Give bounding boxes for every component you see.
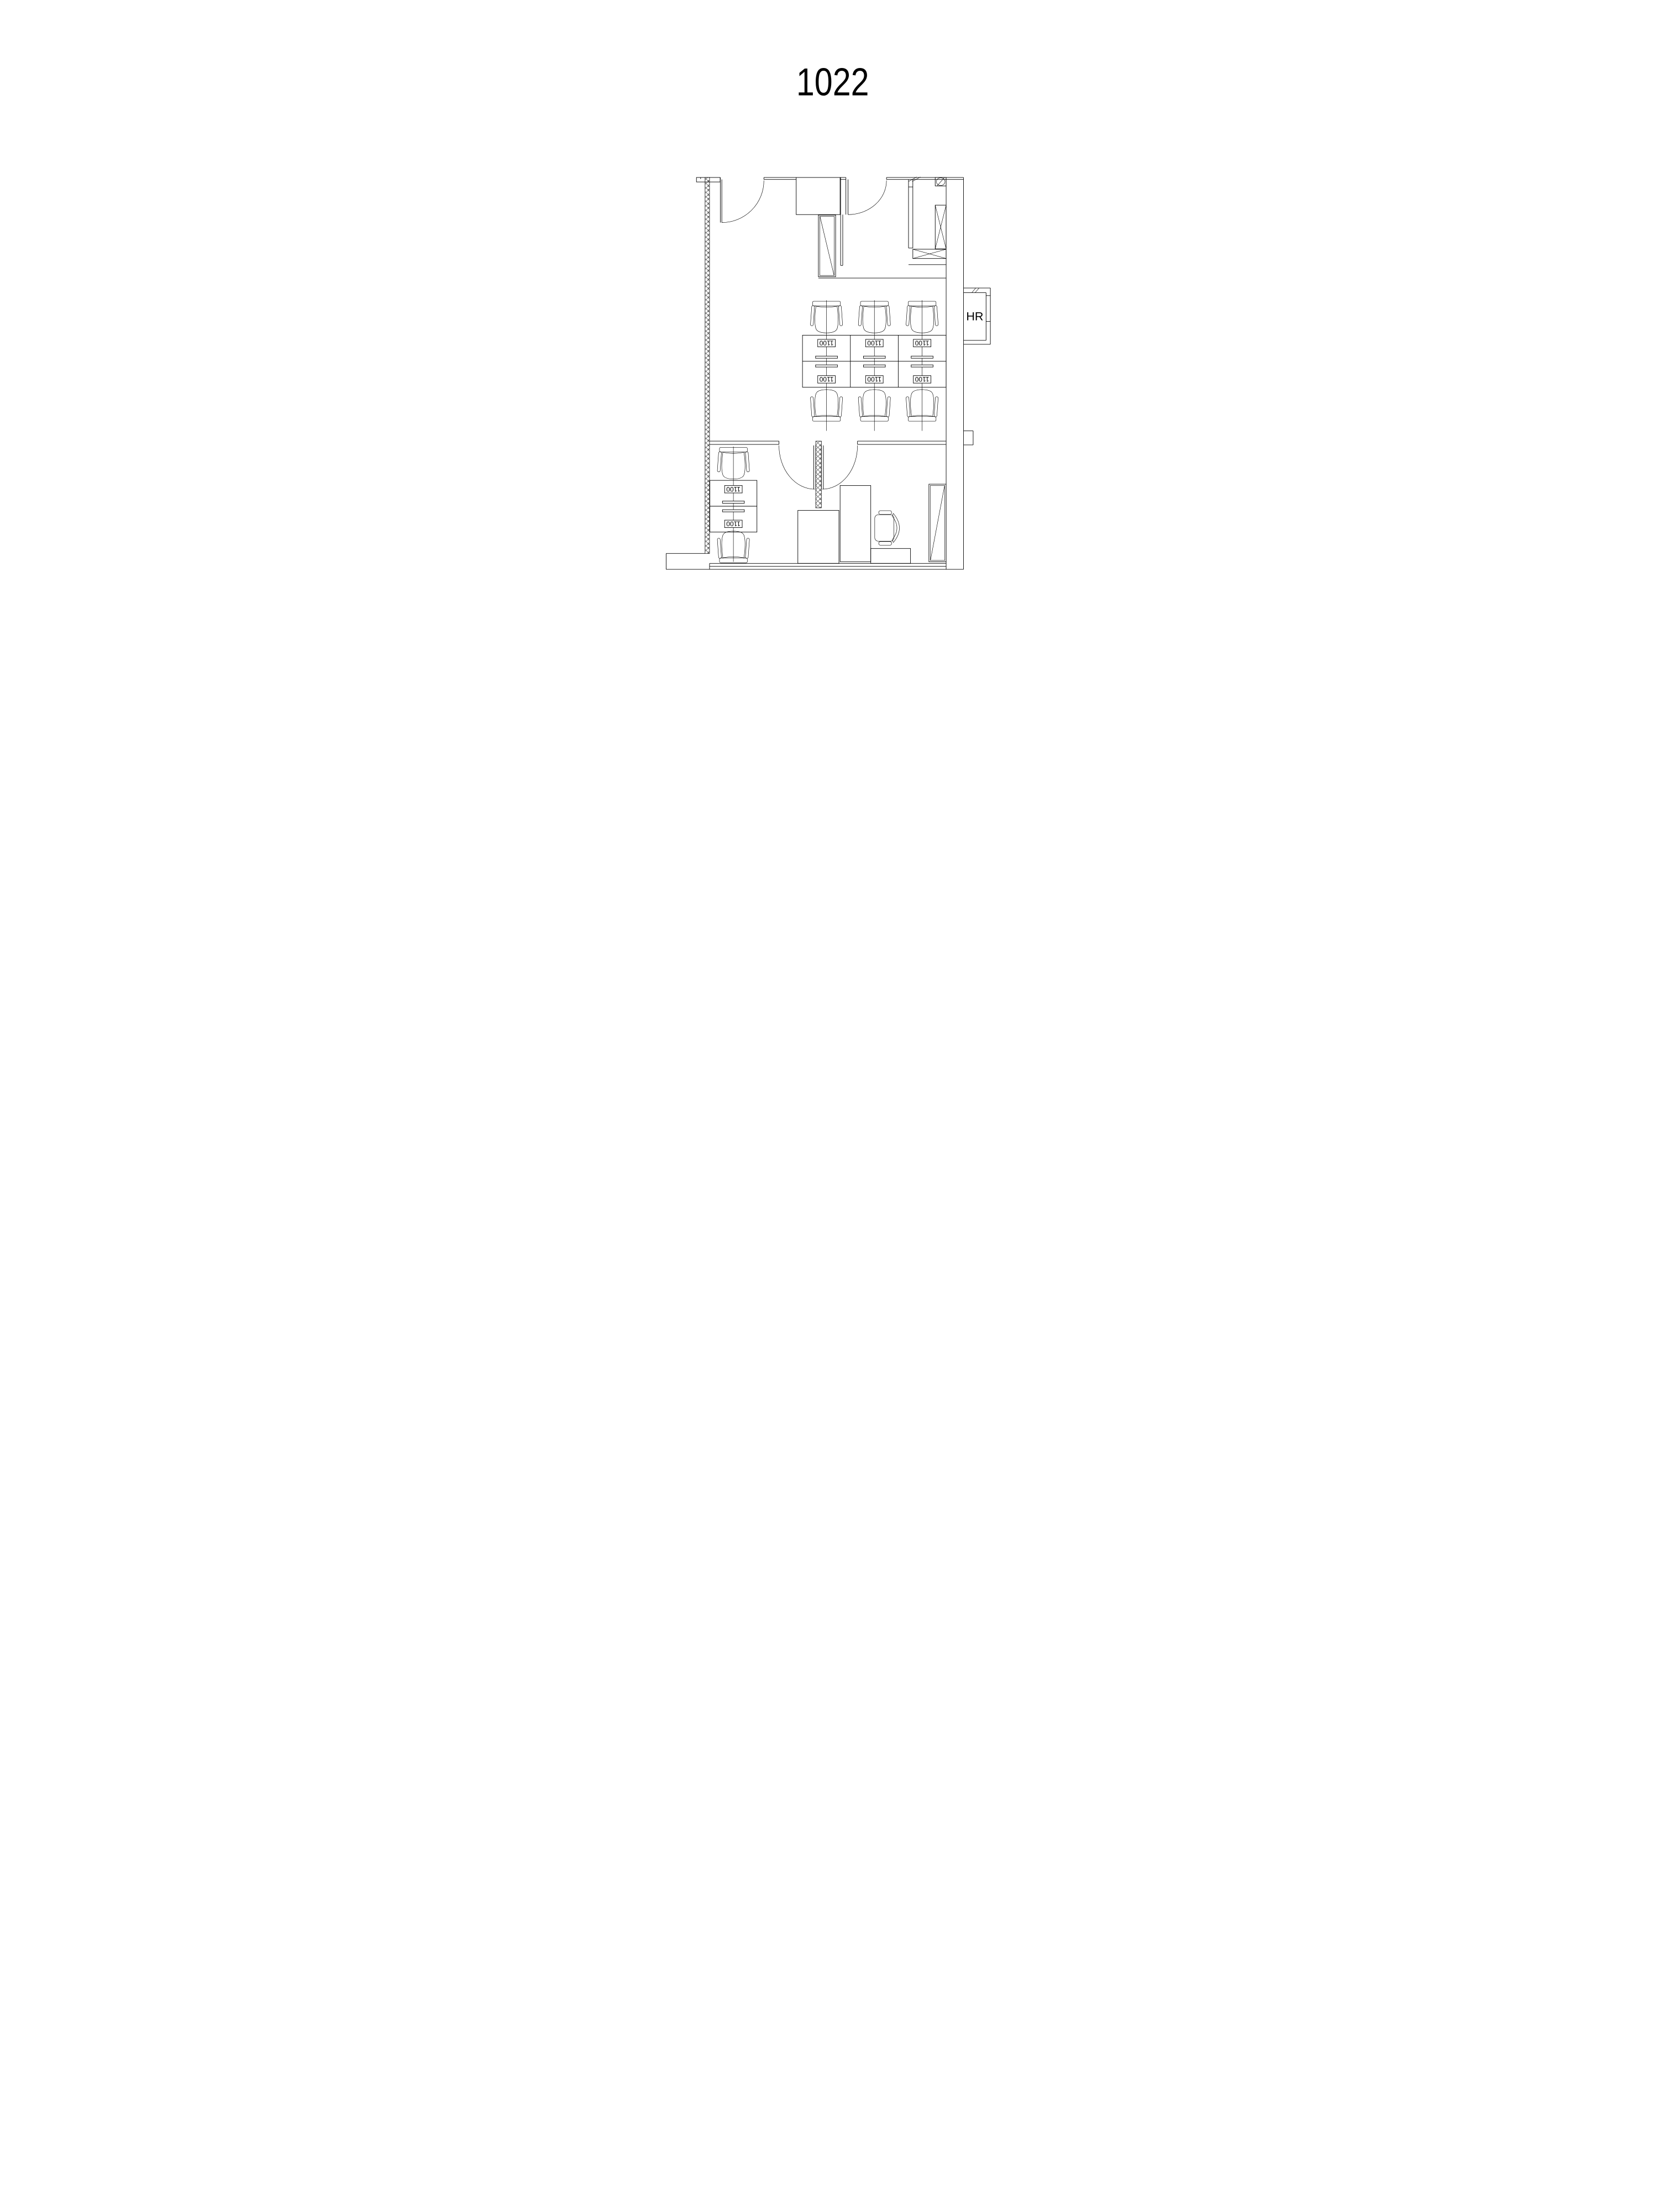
private-desk bbox=[840, 485, 910, 563]
desk-label: 1100 bbox=[725, 520, 742, 527]
door-leaf bbox=[814, 445, 816, 489]
pencil-drawer bbox=[863, 356, 885, 358]
desk-label: 1100 bbox=[818, 375, 836, 383]
hr-room: HR bbox=[964, 288, 991, 344]
floor-plan: 1022 bbox=[581, 0, 1078, 663]
desk-label-text: 1100 bbox=[726, 520, 741, 527]
desk-cluster-left: 1100 1100 bbox=[710, 447, 757, 563]
column-symbol bbox=[935, 177, 946, 186]
desk-label-text: 1100 bbox=[726, 485, 741, 493]
wall-niche bbox=[964, 431, 973, 444]
door-swing-arc bbox=[722, 180, 764, 222]
desk-label-text: 1100 bbox=[819, 375, 833, 383]
desk-label: 1100 bbox=[818, 339, 836, 347]
desk-label-text: 1100 bbox=[915, 375, 929, 383]
side-cabinet bbox=[929, 484, 946, 562]
left-wall-hatched bbox=[705, 177, 710, 553]
middle-wall bbox=[710, 441, 946, 444]
desk-label-text: 1100 bbox=[867, 339, 881, 347]
desk-label: 1100 bbox=[914, 339, 931, 347]
door-swing-arc bbox=[848, 180, 887, 214]
desk-label: 1100 bbox=[914, 375, 931, 383]
door-leaf bbox=[720, 177, 722, 223]
x-cross-icon bbox=[913, 249, 946, 259]
desk-label-text: 1100 bbox=[819, 339, 833, 347]
hr-room-label: HR bbox=[966, 310, 983, 323]
office-chair-icon bbox=[875, 511, 900, 545]
room-number-title: 1022 bbox=[796, 60, 869, 103]
drawing-page: 1022 bbox=[581, 0, 1078, 663]
double-door-right bbox=[821, 445, 857, 489]
bottom-wall bbox=[666, 553, 963, 569]
desk-label: 1100 bbox=[865, 339, 883, 347]
door-top-middle bbox=[846, 180, 886, 215]
pencil-drawer bbox=[911, 365, 933, 367]
desk-label-text: 1100 bbox=[915, 339, 929, 347]
door-swing-arc bbox=[822, 445, 858, 489]
pencil-drawer bbox=[863, 365, 885, 367]
desk-label: 1100 bbox=[865, 375, 883, 383]
middle-wall-hatched bbox=[816, 441, 821, 508]
shaft-x-tall bbox=[935, 205, 946, 249]
pencil-drawer bbox=[911, 356, 933, 358]
pencil-drawer bbox=[722, 501, 744, 504]
desk-cluster-main: 1100 1100 1100 1100 1100 1100 bbox=[802, 300, 946, 431]
x-cross-icon bbox=[935, 205, 946, 249]
reception-counter bbox=[798, 510, 839, 563]
shaft-x-wide bbox=[913, 249, 946, 259]
closet-wall bbox=[909, 177, 946, 265]
pencil-drawer bbox=[816, 365, 838, 367]
shaft-cabinet bbox=[818, 215, 836, 277]
top-cabinet bbox=[796, 177, 840, 214]
desk-label: 1100 bbox=[725, 485, 742, 493]
pencil-drawer bbox=[722, 510, 744, 512]
partition-wall bbox=[841, 177, 843, 265]
door-top-left bbox=[720, 177, 764, 223]
door-swing-arc bbox=[779, 445, 815, 489]
double-door-left bbox=[779, 445, 816, 489]
desk-label-text: 1100 bbox=[867, 375, 881, 383]
door-ticks bbox=[972, 288, 979, 292]
pencil-drawer bbox=[816, 356, 838, 358]
door-leaf bbox=[821, 445, 823, 489]
door-leaf bbox=[846, 180, 848, 215]
